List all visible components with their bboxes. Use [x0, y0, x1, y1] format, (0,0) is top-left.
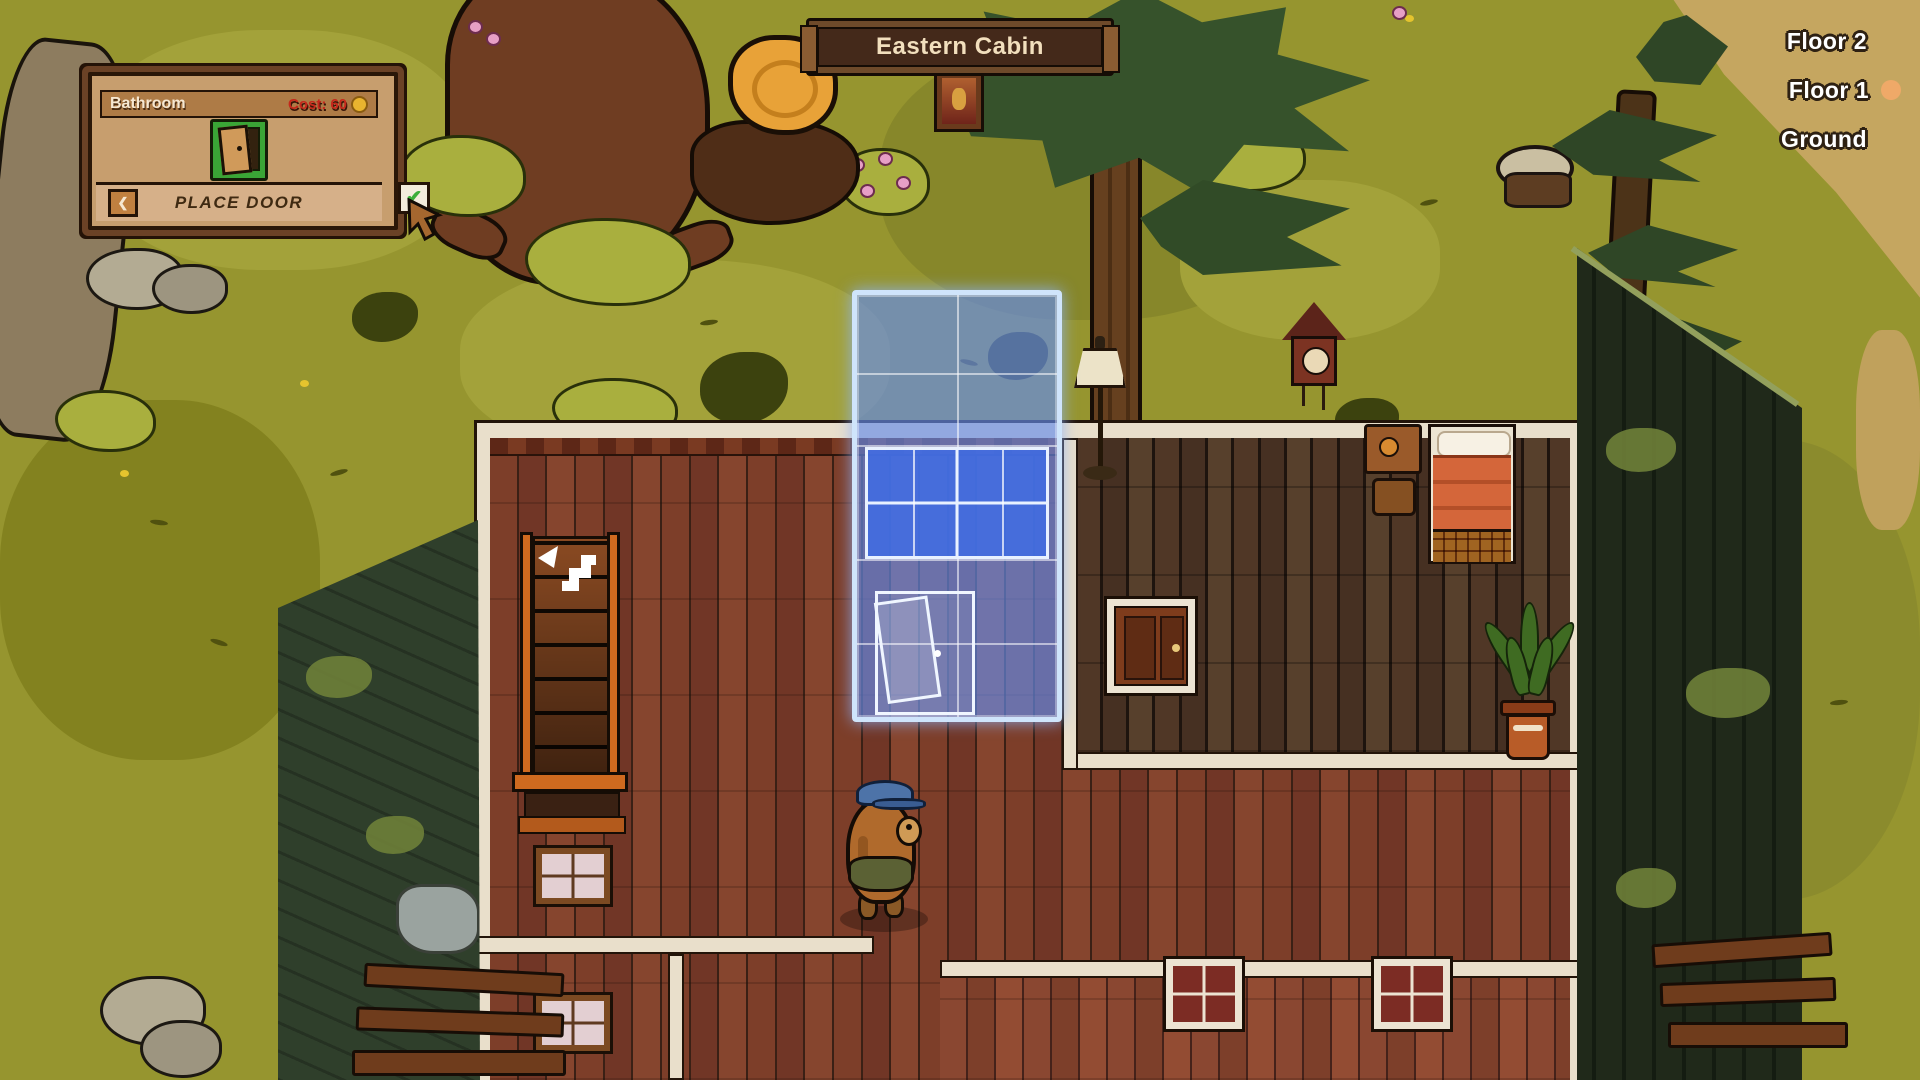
game-viewport[interactable]: Eastern Cabin Bathroom Cost: 60 ❮ PLACE … [0, 0, 1920, 1080]
stair-rail [520, 532, 533, 780]
floor-label: Floor 2 [1787, 28, 1867, 55]
panel-action-row: ❮ PLACE DOOR [96, 182, 382, 221]
stair-rail [607, 532, 620, 780]
support-beam [352, 1050, 566, 1076]
bed-footboard [1433, 529, 1511, 562]
stair-foot-lip [518, 816, 626, 834]
placement-grid-line [857, 373, 1057, 375]
mushroom-dot [120, 470, 129, 477]
door-icon [210, 119, 268, 181]
rock [140, 1020, 222, 1078]
door-knob [1172, 644, 1180, 652]
picture-art [942, 78, 976, 124]
pink-flower [1392, 6, 1407, 20]
placement-window-preview [865, 447, 1049, 559]
placement-grid-line [857, 559, 1057, 561]
moss-patch [1606, 428, 1676, 472]
clock-roof [1282, 302, 1346, 340]
potted-plant[interactable] [1492, 602, 1564, 764]
previous-item-button[interactable]: ❮ [108, 189, 138, 217]
coin-icon [351, 96, 368, 113]
blanket-fold [1433, 480, 1511, 484]
bear-muzzle [896, 816, 922, 846]
clock-pendulum [1302, 386, 1305, 406]
clock-body [1291, 336, 1337, 386]
location-banner: Eastern Cabin [806, 18, 1114, 76]
grass-clump [352, 292, 418, 342]
mushroom-dot [1405, 15, 1414, 22]
placement-zone[interactable] [852, 290, 1062, 722]
clock-pendulum [1322, 386, 1325, 410]
grass-tuft [1420, 198, 1439, 207]
window-muntin [1173, 993, 1235, 996]
window-pane [1173, 966, 1235, 1022]
location-title: Eastern Cabin [876, 33, 1044, 61]
blanket-fold [1433, 506, 1511, 510]
floor-lamp[interactable] [1070, 336, 1130, 484]
lamp-finial [1095, 336, 1105, 350]
window-pane [1381, 966, 1443, 1022]
door-panel [1124, 616, 1156, 680]
floor-selector-item-floor2[interactable]: Floor 2 [1671, 26, 1901, 56]
player-character-bear[interactable] [836, 776, 932, 936]
floor-selector-item-floor1[interactable]: Floor 1 [1671, 75, 1901, 105]
stairs-icon [538, 546, 596, 594]
wall-left-bottom [474, 936, 874, 954]
stump-roots [690, 120, 860, 225]
active-floor-dot [1881, 80, 1901, 100]
plant-pot [1506, 714, 1550, 760]
floor-label: Floor 1 [1789, 77, 1869, 104]
stool[interactable] [1372, 478, 1416, 516]
lamp-pole [1098, 388, 1103, 468]
stair-base-board [512, 772, 628, 792]
pink-flower [468, 20, 483, 34]
moss-patch [1686, 668, 1770, 718]
moss-patch [1616, 868, 1676, 908]
clock-face [1302, 347, 1330, 375]
cursor-paw-icon [406, 198, 448, 244]
door-preview-knob [934, 650, 941, 657]
nightstand[interactable] [1364, 424, 1422, 474]
placement-door-preview [875, 591, 975, 715]
floor-selector: Floor 2 Floor 1 Ground [1671, 26, 1901, 173]
grass-tuft [330, 468, 349, 477]
floor-selector-item-ground[interactable]: Ground [1671, 124, 1901, 154]
floor-label: Ground [1781, 126, 1867, 153]
cost-value: 60 [330, 96, 347, 113]
panel-item-preview [100, 118, 378, 182]
stump-small-side [1504, 172, 1572, 208]
nightstand-item [1379, 437, 1399, 457]
wall-annex-vertical [668, 954, 684, 1080]
moss-patch [366, 816, 424, 854]
banner-end-cap [800, 25, 818, 73]
support-beam [1668, 1022, 1848, 1048]
door-icon-leaf [218, 125, 253, 176]
panel-cost: Cost: 60 [288, 96, 368, 113]
cost-label: Cost: [288, 96, 326, 113]
mushroom-dot [300, 380, 309, 387]
door-preview-leaf [874, 595, 942, 704]
banner-end-cap [1102, 25, 1120, 73]
bed[interactable] [1428, 424, 1516, 564]
staircase[interactable] [508, 528, 632, 834]
picture-figure [952, 88, 966, 110]
wall-mid-vertical [1062, 438, 1078, 770]
banner-plank: Eastern Cabin [817, 27, 1103, 67]
pink-flower [860, 184, 875, 198]
window-preview-muntin [913, 450, 915, 556]
lamp-base [1083, 466, 1117, 480]
interior-door[interactable] [1104, 596, 1198, 696]
window[interactable] [1163, 956, 1245, 1032]
pink-flower [486, 32, 501, 46]
panel-header: Bathroom Cost: 60 [100, 90, 378, 118]
moss-patch [306, 656, 372, 698]
door-icon-knob [237, 146, 242, 151]
dirt-path-spot [1856, 330, 1920, 530]
placement-panel[interactable]: Bathroom Cost: 60 ❮ PLACE DOOR [88, 72, 398, 230]
window-preview-muntin [868, 502, 1046, 505]
grass-patch [0, 400, 320, 760]
window[interactable] [533, 845, 613, 907]
rock [152, 264, 228, 314]
bed-pillow [1437, 431, 1511, 457]
pink-flower [896, 176, 911, 190]
window-preview-muntin [1002, 450, 1004, 556]
roof-left [276, 516, 480, 1080]
picture-frame[interactable] [934, 70, 984, 132]
lamp-shade [1074, 348, 1126, 388]
wall-bottom [940, 960, 1586, 978]
window-muntin [1381, 993, 1443, 996]
cabin-floor-porch [940, 978, 1570, 1080]
support-beam [1660, 977, 1837, 1007]
bear-nose [906, 824, 912, 830]
window[interactable] [1371, 956, 1453, 1032]
bear-shorts [848, 856, 914, 892]
window-muntin [542, 875, 604, 878]
tarp-patch [396, 884, 480, 954]
pot-pattern [1513, 725, 1543, 731]
bear-cap-brim [872, 798, 926, 810]
pink-flower [878, 152, 893, 166]
window-pane [542, 854, 604, 898]
panel-title: Bathroom [110, 95, 186, 113]
bed-blanket [1433, 455, 1511, 530]
panel-action-label: PLACE DOOR [96, 193, 382, 213]
door-leaf [1114, 606, 1188, 686]
cuckoo-clock[interactable] [1282, 302, 1346, 412]
